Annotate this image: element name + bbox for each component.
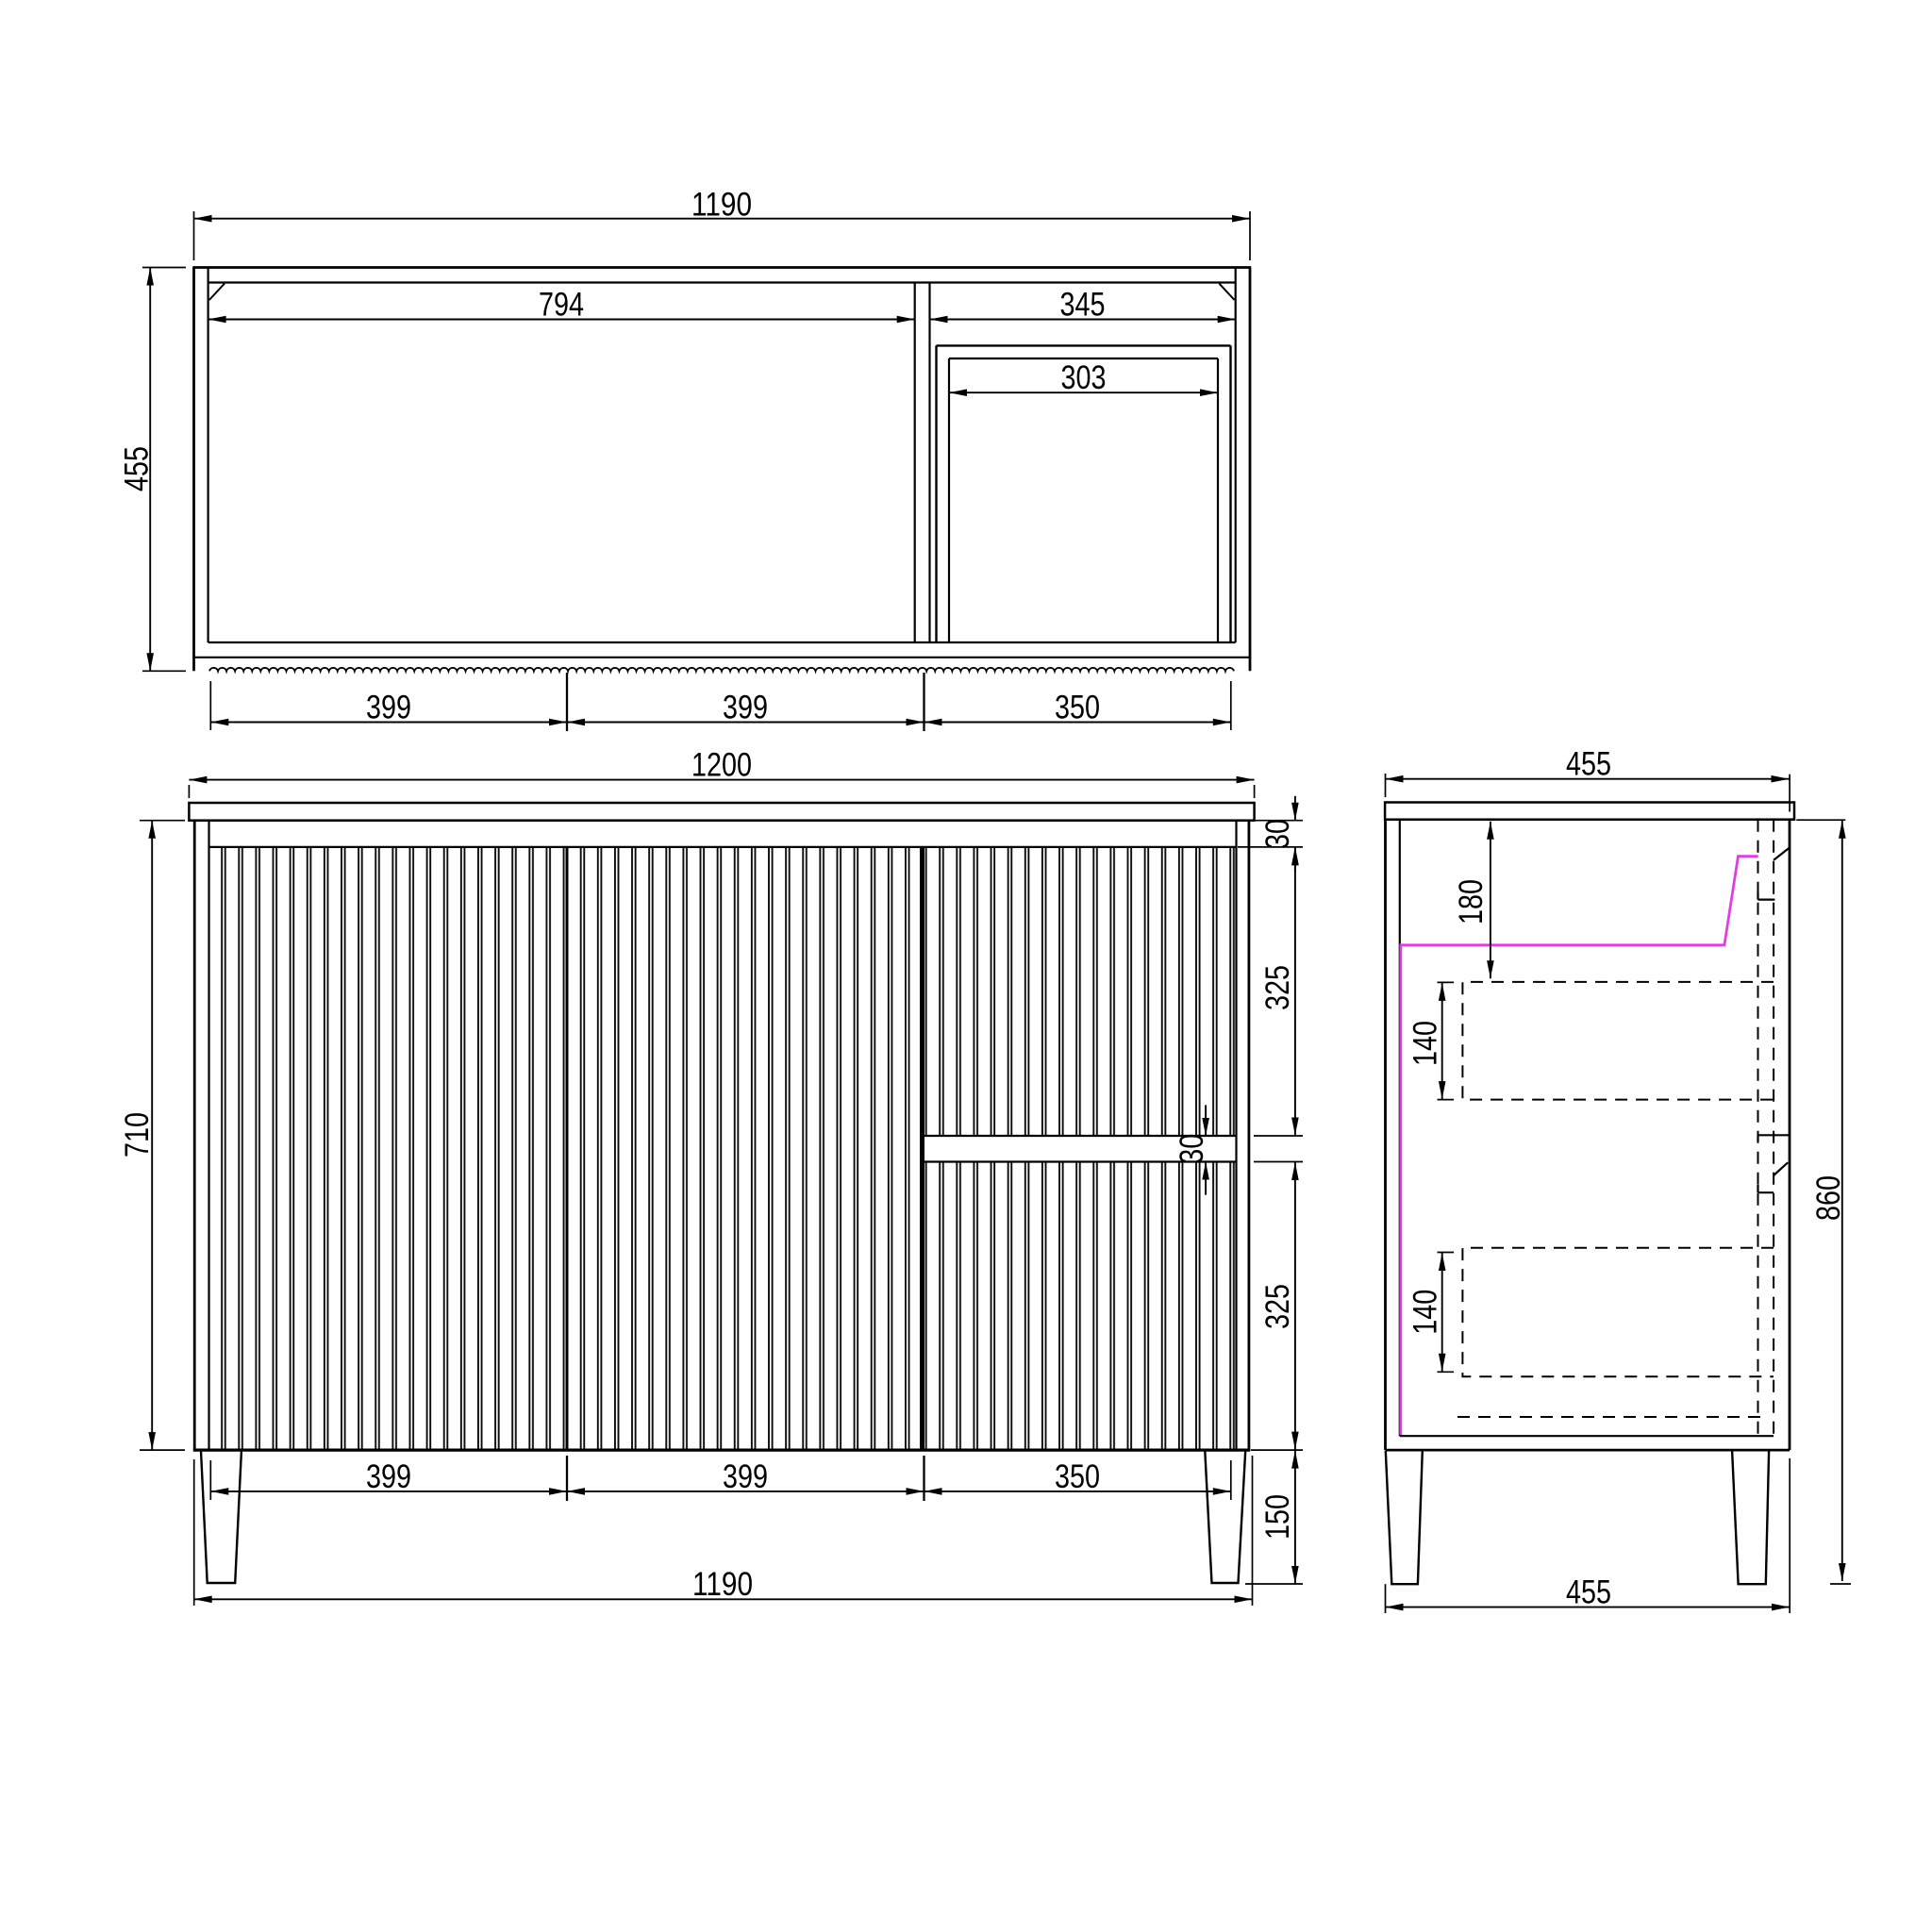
svg-text:325: 325 bbox=[1258, 965, 1296, 1010]
svg-text:710: 710 bbox=[118, 1112, 156, 1158]
svg-text:399: 399 bbox=[366, 1457, 411, 1495]
svg-text:350: 350 bbox=[1055, 1457, 1100, 1495]
svg-text:30: 30 bbox=[1173, 1134, 1210, 1164]
svg-text:350: 350 bbox=[1055, 689, 1100, 726]
svg-text:345: 345 bbox=[1060, 286, 1106, 324]
svg-text:1190: 1190 bbox=[692, 1565, 753, 1603]
svg-text:399: 399 bbox=[723, 1457, 768, 1495]
svg-text:30: 30 bbox=[1258, 819, 1296, 849]
svg-text:303: 303 bbox=[1061, 358, 1107, 396]
svg-text:140: 140 bbox=[1407, 1021, 1444, 1066]
svg-text:860: 860 bbox=[1809, 1175, 1847, 1221]
svg-text:455: 455 bbox=[118, 446, 156, 491]
svg-text:1200: 1200 bbox=[691, 746, 752, 784]
svg-text:399: 399 bbox=[723, 689, 768, 726]
svg-text:399: 399 bbox=[366, 689, 411, 726]
svg-text:455: 455 bbox=[1566, 1574, 1611, 1611]
svg-text:140: 140 bbox=[1407, 1290, 1444, 1335]
svg-text:794: 794 bbox=[539, 286, 584, 324]
svg-text:325: 325 bbox=[1258, 1284, 1296, 1329]
svg-text:180: 180 bbox=[1452, 879, 1490, 924]
svg-text:150: 150 bbox=[1258, 1494, 1296, 1540]
svg-text:455: 455 bbox=[1566, 745, 1611, 783]
svg-text:1190: 1190 bbox=[691, 186, 752, 224]
